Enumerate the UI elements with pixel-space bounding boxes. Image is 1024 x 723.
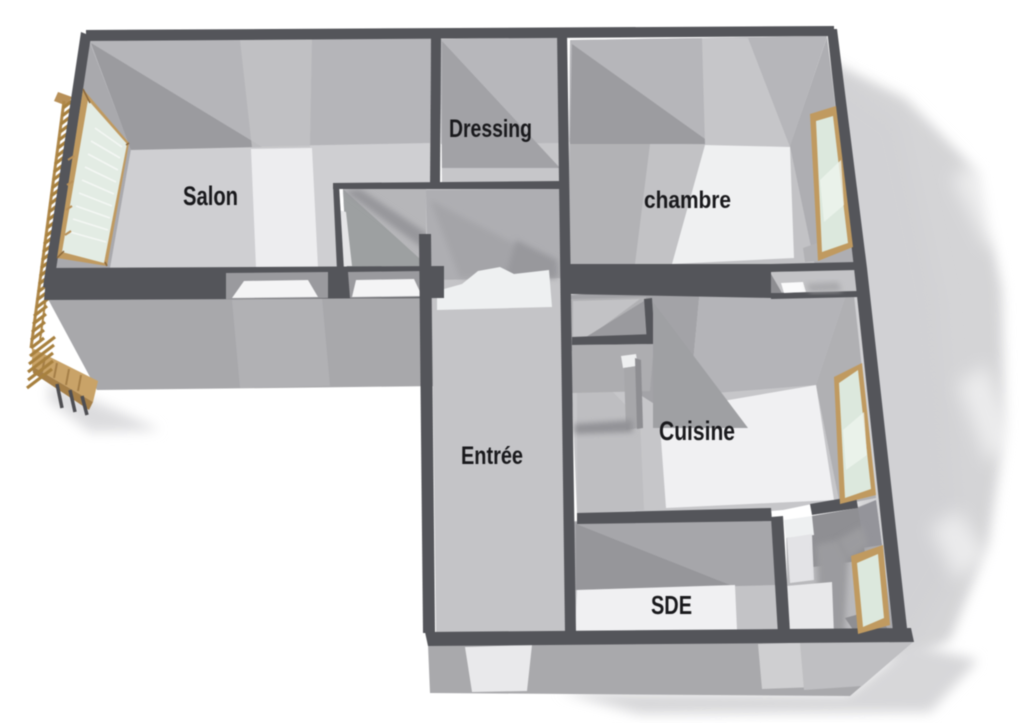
svg-text:SDE: SDE [651,590,692,620]
svg-text:Salon: Salon [183,181,238,211]
svg-text:Cuisine: Cuisine [659,416,735,446]
svg-text:Dressing: Dressing [449,115,532,143]
svg-text:Entrée: Entrée [461,442,523,470]
svg-text:chambre: chambre [644,187,731,214]
